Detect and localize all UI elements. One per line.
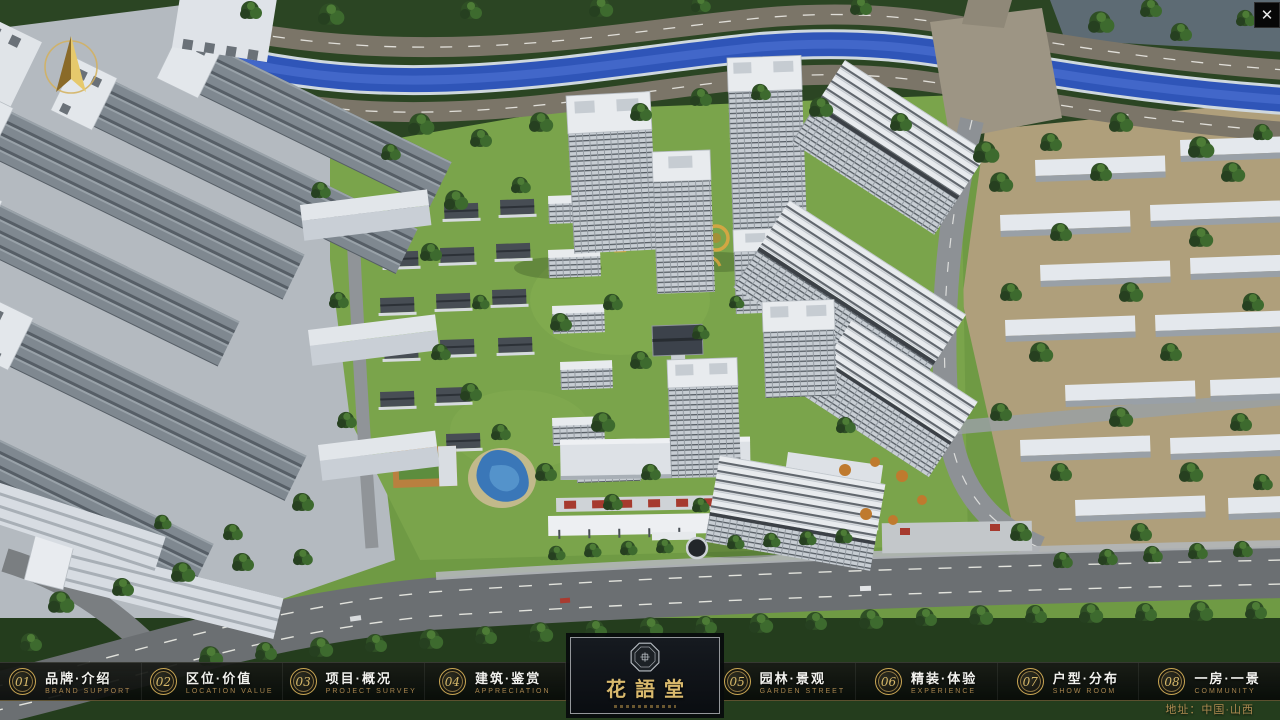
nav-badge-03: 03 (290, 668, 317, 695)
nav-item-views[interactable]: 08 一房·一景 COMMUNITY (1139, 663, 1280, 700)
close-icon: ✕ (1261, 8, 1274, 23)
nav-badge-04: 04 (439, 668, 466, 695)
nav-label-en: SHOW ROOM (1053, 688, 1117, 695)
nav-badge-06: 06 (875, 668, 902, 695)
nav-label-en: COMMUNITY (1194, 688, 1255, 695)
nav-badge-07: 07 (1017, 668, 1044, 695)
nav-badge-02: 02 (150, 668, 177, 695)
nav-badge-01: 01 (9, 668, 36, 695)
nav-group-left: 01 品牌·介绍 BRAND SUPPORT 02 区位·价值 LOCATION… (0, 663, 566, 700)
nav-label-en: APPRECIATION (475, 688, 551, 695)
nav-label-zh: 项目·概况 (326, 668, 392, 687)
nav-item-interior[interactable]: 06 精装·体验 EXPERIENCE (856, 663, 998, 700)
nav-label-en: PROJECT SURVEY (326, 688, 417, 695)
app-window: ✕ 01 品牌·介绍 BRAND SUPPORT 02 区位·价值 LOCATI… (0, 0, 1280, 720)
nav-item-location[interactable]: 02 区位·价值 LOCATION VALUE (142, 663, 284, 700)
seal-icon (630, 642, 660, 672)
nav-label-zh: 园林·景观 (760, 668, 826, 687)
nav-group-right: 05 园林·景观 GARDEN STREET 06 精装·体验 EXPERIEN… (714, 663, 1280, 700)
nav-item-brand[interactable]: 01 品牌·介绍 BRAND SUPPORT (0, 663, 142, 700)
nav-item-floorplan[interactable]: 07 户型·分布 SHOW ROOM (998, 663, 1140, 700)
nav-label-zh: 建筑·鉴赏 (475, 668, 541, 687)
project-address: 地址：中国·山西 (1165, 701, 1254, 717)
close-button[interactable]: ✕ (1254, 2, 1280, 28)
north-compass-icon (36, 28, 106, 102)
nav-badge-05: 05 (724, 668, 751, 695)
nav-label-en: LOCATION VALUE (186, 688, 274, 695)
nav-item-architecture[interactable]: 04 建筑·鉴赏 APPRECIATION (425, 663, 567, 700)
nav-item-garden[interactable]: 05 园林·景观 GARDEN STREET (714, 663, 856, 700)
logo-title: 花語堂 (606, 673, 693, 702)
nav-label-en: BRAND SUPPORT (45, 688, 131, 695)
nav-label-en: GARDEN STREET (760, 688, 846, 695)
nav-badge-08: 08 (1158, 668, 1185, 695)
nav-label-zh: 一房·一景 (1194, 668, 1260, 687)
nav-label-zh: 区位·价值 (186, 668, 252, 687)
nav-label-zh: 户型·分布 (1053, 668, 1119, 687)
nav-label-zh: 品牌·介绍 (45, 668, 111, 687)
masterplan-3d-render (0, 0, 1280, 720)
nav-item-project[interactable]: 03 项目·概况 PROJECT SURVEY (283, 663, 425, 700)
logo-subtitle-decoration (614, 705, 676, 708)
nav-label-zh: 精装·体验 (911, 668, 977, 687)
brand-logo[interactable]: 花語堂 (570, 637, 720, 714)
nav-label-en: EXPERIENCE (911, 688, 976, 695)
